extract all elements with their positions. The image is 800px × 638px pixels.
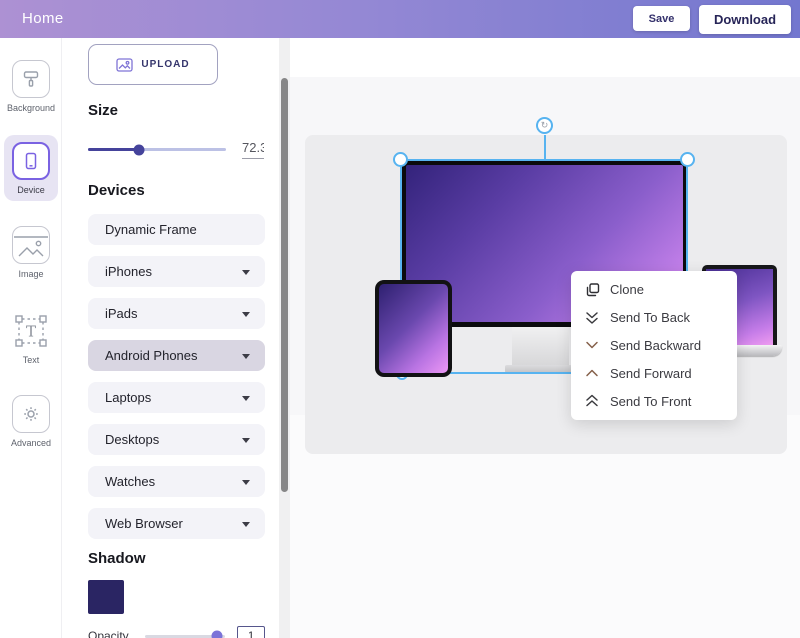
double-chevron-up-icon xyxy=(584,393,600,409)
device-list: Dynamic Frame iPhones iPads Android Phon… xyxy=(88,214,265,539)
context-menu-item-send-to-front[interactable]: Send To Front xyxy=(571,388,737,414)
monitor-stand-base xyxy=(505,365,578,374)
size-value-input[interactable]: 72.3 xyxy=(242,140,264,159)
chevron-down-icon xyxy=(242,396,250,401)
image-icon xyxy=(12,226,50,264)
clone-icon xyxy=(584,282,600,298)
device-item-label: iPhones xyxy=(105,264,152,279)
context-menu-item-clone[interactable]: Clone xyxy=(571,277,737,303)
tablet-mockup[interactable] xyxy=(375,280,452,377)
tool-rail: Background Device Image xyxy=(0,38,62,638)
rotate-handle-icon[interactable]: ↻ xyxy=(536,117,553,134)
device-item-watches[interactable]: Watches xyxy=(88,466,265,497)
canvas-area: ↻ Clone xyxy=(290,38,800,638)
resize-handle-top-left[interactable] xyxy=(393,152,408,167)
sidebar-item-label: Advanced xyxy=(11,438,51,448)
size-heading: Size xyxy=(88,102,265,119)
double-chevron-down-icon xyxy=(584,310,600,326)
shadow-heading: Shadow xyxy=(88,550,265,567)
device-item-label: Web Browser xyxy=(105,516,183,531)
canvas-top-strip xyxy=(290,38,800,77)
chevron-down-icon xyxy=(584,337,600,353)
size-slider-row: 72.3 xyxy=(88,140,265,159)
device-item-label: Laptops xyxy=(105,390,151,405)
page-title: Home xyxy=(22,0,64,38)
panel-scrollbar-thumb[interactable] xyxy=(281,78,288,492)
device-panel: UPLOAD Size 72.3 Devices Dynamic Frame i… xyxy=(62,38,279,638)
device-item-label: Android Phones xyxy=(105,348,198,363)
shadow-color-swatch[interactable] xyxy=(88,580,124,614)
opacity-row: Opacity 1 xyxy=(88,626,265,638)
sidebar-item-device[interactable]: Device xyxy=(4,135,58,201)
device-item-web-browser[interactable]: Web Browser xyxy=(88,508,265,539)
device-item-android-phones[interactable]: Android Phones xyxy=(88,340,265,371)
rotation-line xyxy=(544,135,546,161)
context-menu-item-send-backward[interactable]: Send Backward xyxy=(571,332,737,358)
svg-text:T: T xyxy=(26,323,36,341)
device-item-ipads[interactable]: iPads xyxy=(88,298,265,329)
context-menu-item-send-forward[interactable]: Send Forward xyxy=(571,360,737,386)
chevron-down-icon xyxy=(242,354,250,359)
gear-icon xyxy=(12,395,50,433)
device-item-dynamic-frame[interactable]: Dynamic Frame xyxy=(88,214,265,245)
context-menu-label: Send Forward xyxy=(610,366,692,381)
sidebar-item-label: Image xyxy=(18,269,43,279)
resize-handle-top-right[interactable] xyxy=(680,152,695,167)
devices-heading: Devices xyxy=(88,182,265,199)
smartphone-icon xyxy=(12,142,50,180)
device-item-label: Watches xyxy=(105,474,155,489)
sidebar-item-image[interactable]: Image xyxy=(0,226,62,279)
opacity-slider[interactable] xyxy=(145,635,225,638)
monitor-stand-neck xyxy=(512,327,569,367)
context-menu-item-send-to-back[interactable]: Send To Back xyxy=(571,305,737,331)
opacity-slider-thumb[interactable] xyxy=(212,631,223,638)
device-item-laptops[interactable]: Laptops xyxy=(88,382,265,413)
context-menu-label: Clone xyxy=(610,282,644,297)
context-menu-label: Send To Back xyxy=(610,310,690,325)
app-window: Home Save Download Background Devi xyxy=(0,0,800,638)
opacity-value-input[interactable]: 1 xyxy=(237,626,265,638)
upload-label: UPLOAD xyxy=(141,59,189,70)
paint-roller-icon xyxy=(12,60,50,98)
context-menu-label: Send Backward xyxy=(610,338,701,353)
chevron-down-icon xyxy=(242,270,250,275)
size-slider-thumb[interactable] xyxy=(134,144,145,155)
device-item-iphones[interactable]: iPhones xyxy=(88,256,265,287)
device-item-label: Dynamic Frame xyxy=(105,222,197,237)
context-menu: Clone Send To Back Send Backward Send Fo… xyxy=(571,271,737,420)
tablet-screen-gradient xyxy=(379,284,448,373)
chevron-up-icon xyxy=(584,365,600,381)
sidebar-item-text[interactable]: T Text xyxy=(0,312,62,365)
chevron-down-icon xyxy=(242,312,250,317)
sidebar-item-label: Text xyxy=(23,355,40,365)
upload-image-icon xyxy=(116,58,133,72)
device-item-label: Desktops xyxy=(105,432,159,447)
chevron-down-icon xyxy=(242,480,250,485)
upload-button[interactable]: UPLOAD xyxy=(88,44,218,85)
sidebar-item-label: Background xyxy=(7,103,55,113)
sidebar-item-label: Device xyxy=(17,185,45,195)
opacity-label: Opacity xyxy=(88,629,145,638)
sidebar-item-background[interactable]: Background xyxy=(0,60,62,113)
sidebar-item-advanced[interactable]: Advanced xyxy=(0,395,62,448)
chevron-down-icon xyxy=(242,522,250,527)
device-item-label: iPads xyxy=(105,306,138,321)
header-bar: Home Save Download xyxy=(0,0,800,38)
save-button[interactable]: Save xyxy=(633,6,690,31)
device-item-desktops[interactable]: Desktops xyxy=(88,424,265,455)
text-frame-icon: T xyxy=(12,312,50,350)
panel-scrollbar[interactable] xyxy=(279,38,290,638)
download-button[interactable]: Download xyxy=(699,5,791,34)
size-slider[interactable] xyxy=(88,148,226,151)
chevron-down-icon xyxy=(242,438,250,443)
context-menu-label: Send To Front xyxy=(610,394,691,409)
